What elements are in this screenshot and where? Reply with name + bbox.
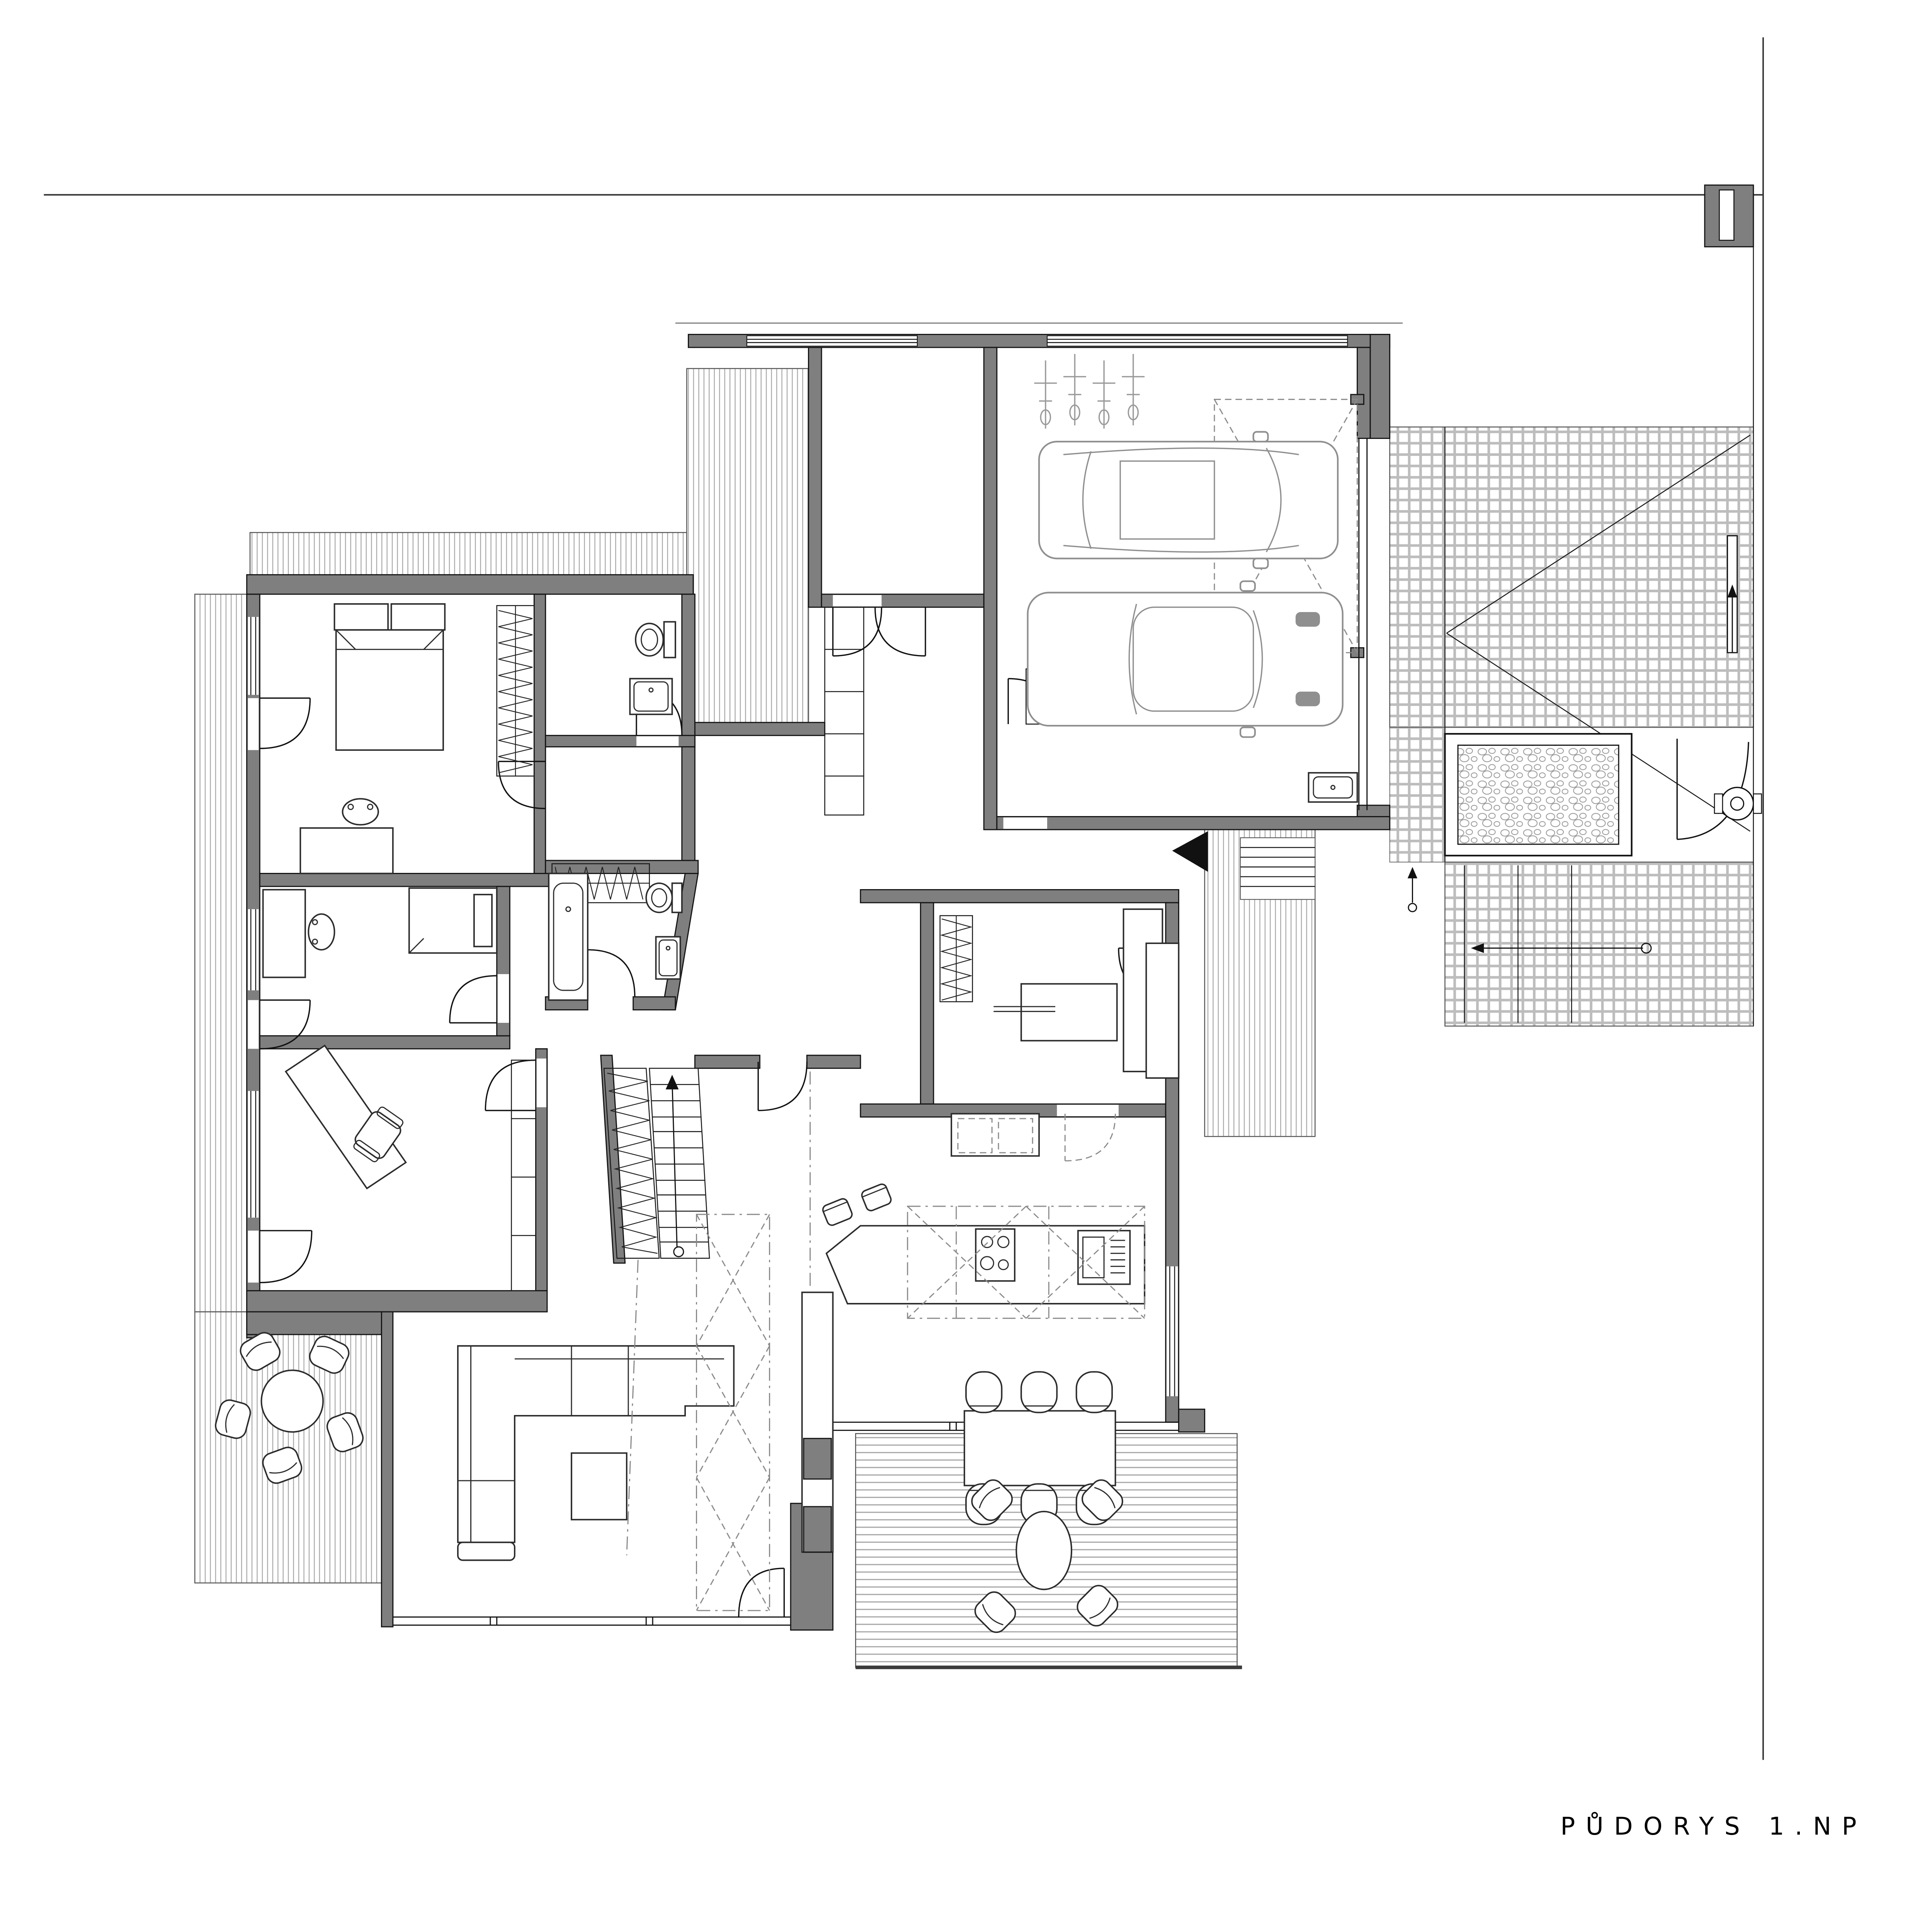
mudroom-shelf bbox=[825, 607, 864, 815]
outdoor-equipment-unit bbox=[1714, 787, 1762, 820]
bath2-door bbox=[588, 950, 635, 997]
wall-stair-slanted bbox=[601, 1055, 625, 1263]
master-bed bbox=[335, 604, 445, 750]
living-room bbox=[458, 1071, 833, 1611]
opening-office-door bbox=[537, 1058, 546, 1107]
wall-stairhead-b bbox=[807, 1055, 861, 1068]
porch-bench bbox=[1146, 943, 1179, 1078]
master-terrace-door bbox=[260, 698, 310, 748]
window-east bbox=[1167, 1266, 1178, 1396]
opening-garage-door bbox=[1003, 818, 1047, 829]
entrance-marker-triangle bbox=[1172, 831, 1208, 872]
dining-chair bbox=[1021, 1372, 1057, 1412]
kitchen-sink bbox=[1078, 1231, 1130, 1284]
floor-plan-canvas: PŮDORYS 1.NP bbox=[0, 0, 1932, 1932]
wall-garage-east-top bbox=[1357, 347, 1371, 438]
office-shelf bbox=[512, 1060, 536, 1291]
wall-garage-south bbox=[997, 816, 1390, 830]
bathroom-family bbox=[549, 874, 682, 1000]
toilet-2 bbox=[646, 883, 682, 913]
drawing-title: PŮDORYS 1.NP bbox=[1560, 1812, 1867, 1840]
fireplace-unit bbox=[993, 984, 1117, 1041]
north-strip-deck bbox=[250, 532, 687, 575]
wall-bath1-east bbox=[682, 594, 695, 747]
window-bedroom2-west bbox=[248, 909, 259, 990]
living-terrace-door bbox=[739, 1568, 784, 1617]
opening-storage-door bbox=[833, 595, 881, 606]
west-strip-deck bbox=[195, 594, 247, 1312]
wardrobe-master bbox=[497, 605, 534, 776]
opening-master-terrace-door bbox=[248, 698, 259, 750]
ceiling-feature-strip bbox=[697, 1214, 770, 1611]
window-office-west bbox=[248, 1091, 259, 1218]
bathroom-ensuite bbox=[630, 622, 675, 714]
drawing-sheet: PŮDORYS 1.NP bbox=[0, 0, 1932, 1932]
opening-utility-door bbox=[1057, 1105, 1119, 1116]
living-south-glass bbox=[393, 1617, 791, 1625]
utility-wardrobe bbox=[940, 916, 973, 1002]
bike bbox=[1122, 354, 1145, 425]
kitchen-island bbox=[821, 1183, 1145, 1318]
wall-utility-north bbox=[861, 890, 1179, 903]
porch-steps bbox=[1240, 838, 1315, 900]
garage-sink bbox=[1309, 773, 1357, 802]
wall-office-south bbox=[247, 1291, 547, 1312]
coffee-table bbox=[571, 1453, 627, 1520]
opening-bath1-door bbox=[636, 736, 679, 746]
garage-door-opening bbox=[1359, 438, 1367, 810]
utility-appliances bbox=[951, 1114, 1039, 1156]
opening-bedroom2-terrace-door bbox=[248, 1000, 259, 1049]
kitchen-hall-door bbox=[758, 1062, 807, 1111]
north-deck bbox=[687, 369, 808, 723]
wall-se-corner bbox=[1179, 1409, 1204, 1432]
window-north-2 bbox=[1047, 336, 1347, 346]
bar-stool bbox=[821, 1197, 854, 1227]
bedroom2-desk bbox=[263, 890, 335, 978]
bar-stool bbox=[861, 1183, 893, 1212]
main-staircase bbox=[650, 1068, 709, 1259]
tv-cabinet bbox=[802, 1293, 833, 1552]
car-wagon bbox=[1039, 432, 1338, 568]
bedroom2-hall-door bbox=[450, 976, 497, 1023]
bathtub bbox=[549, 874, 588, 1000]
wall-master-east bbox=[534, 594, 545, 874]
wall-utility-west bbox=[920, 903, 934, 1104]
step-up-arrow bbox=[1408, 867, 1417, 912]
office-desk bbox=[286, 1046, 406, 1189]
bedroom2-bed bbox=[409, 888, 497, 953]
office-hall-door bbox=[485, 1060, 536, 1111]
wall-bath2-south-b bbox=[633, 997, 675, 1010]
opening-office-terrace-door bbox=[248, 1231, 259, 1282]
cooktop bbox=[976, 1229, 1015, 1281]
hall-cloak-door bbox=[875, 607, 925, 656]
utility-pocket-door bbox=[1065, 1114, 1115, 1161]
washbasin-2 bbox=[656, 937, 680, 979]
office-terrace-door bbox=[260, 1231, 311, 1282]
wall-hall-north bbox=[687, 723, 825, 736]
bike bbox=[1093, 361, 1116, 429]
dining-chair bbox=[966, 1372, 1002, 1412]
bike-rack bbox=[1034, 354, 1145, 429]
window-master-west bbox=[248, 617, 259, 695]
storage-door bbox=[833, 607, 881, 656]
wall-living-west bbox=[381, 1312, 393, 1627]
garage bbox=[1028, 354, 1357, 802]
pebble-bed bbox=[1458, 745, 1619, 844]
bike bbox=[1063, 354, 1086, 425]
wall-garage-corner bbox=[1370, 335, 1389, 439]
wall-garage-west bbox=[984, 347, 997, 830]
wall-corridor-west bbox=[682, 747, 695, 861]
car-sedan bbox=[1028, 581, 1343, 737]
round-table bbox=[1016, 1512, 1071, 1590]
wall-stairhead-a bbox=[695, 1055, 760, 1068]
toilet-1 bbox=[636, 622, 675, 657]
window-north-1 bbox=[747, 336, 917, 346]
bike bbox=[1034, 361, 1057, 429]
wall-storage-west bbox=[808, 347, 821, 607]
wall-master-south bbox=[260, 874, 560, 887]
dining-chair bbox=[1077, 1372, 1112, 1412]
master-desk bbox=[300, 799, 393, 873]
wall-sw-block bbox=[247, 1312, 390, 1335]
pedestrian-gate bbox=[1728, 536, 1737, 653]
opening-bedroom2-door bbox=[498, 974, 509, 1023]
round-table bbox=[261, 1370, 323, 1432]
washbasin-1 bbox=[630, 679, 672, 714]
wall-wing-north bbox=[247, 575, 693, 594]
